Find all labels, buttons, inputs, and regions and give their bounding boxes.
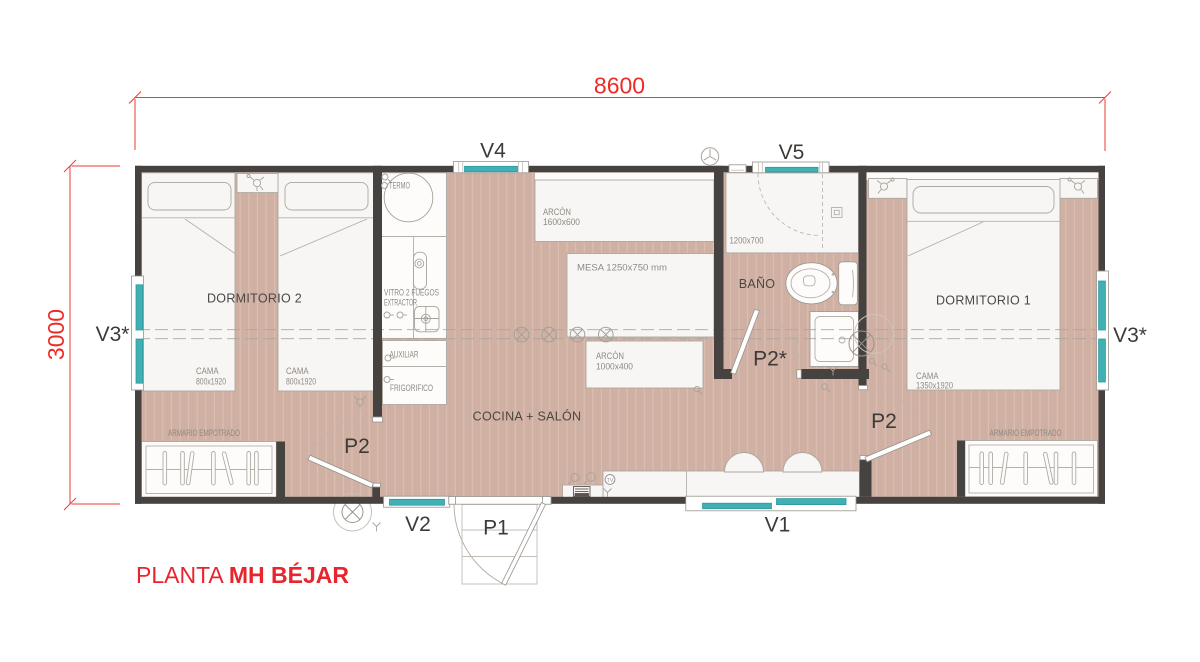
svg-text:VITRO 2 FUEGOS: VITRO 2 FUEGOS bbox=[384, 288, 439, 298]
svg-text:P2*: P2* bbox=[753, 348, 787, 371]
svg-text:8600: 8600 bbox=[594, 73, 645, 99]
svg-text:P2: P2 bbox=[871, 410, 897, 433]
svg-text:V4: V4 bbox=[480, 140, 506, 163]
svg-text:TV: TV bbox=[607, 478, 614, 484]
svg-text:BAÑO: BAÑO bbox=[739, 277, 776, 291]
svg-text:1200x700: 1200x700 bbox=[730, 236, 764, 246]
svg-text:V2: V2 bbox=[405, 513, 431, 536]
svg-text:V3*: V3* bbox=[1113, 324, 1147, 347]
svg-text:ARCÓN: ARCÓN bbox=[596, 351, 624, 361]
svg-text:EXTRACTOR: EXTRACTOR bbox=[384, 298, 417, 308]
svg-text:1600x600: 1600x600 bbox=[543, 217, 580, 227]
svg-text:CAMA: CAMA bbox=[196, 366, 219, 376]
svg-text:P2: P2 bbox=[344, 435, 370, 458]
svg-text:MESA 1250x750 mm: MESA 1250x750 mm bbox=[577, 263, 667, 273]
svg-text:COCINA + SALÓN: COCINA + SALÓN bbox=[473, 409, 582, 424]
svg-text:ARCÓN: ARCÓN bbox=[543, 207, 571, 217]
svg-text:DORMITORIO 2: DORMITORIO 2 bbox=[207, 292, 302, 306]
svg-text:800x1920: 800x1920 bbox=[196, 377, 226, 387]
svg-text:DORMITORIO 1: DORMITORIO 1 bbox=[936, 294, 1031, 308]
svg-text:PLANTA MH BÉJAR: PLANTA MH BÉJAR bbox=[136, 561, 349, 588]
svg-text:AUXILIAR: AUXILIAR bbox=[390, 350, 419, 360]
svg-text:ARMARIO EMPOTRADO: ARMARIO EMPOTRADO bbox=[168, 428, 240, 438]
svg-text:ARMARIO EMPOTRADO: ARMARIO EMPOTRADO bbox=[990, 428, 1062, 438]
svg-text:P1: P1 bbox=[483, 517, 509, 540]
svg-text:800x1920: 800x1920 bbox=[286, 377, 316, 387]
svg-text:V1: V1 bbox=[765, 514, 791, 537]
svg-text:1000x400: 1000x400 bbox=[596, 362, 633, 372]
svg-text:CAMA: CAMA bbox=[916, 371, 939, 381]
svg-text:1350x1920: 1350x1920 bbox=[916, 381, 953, 391]
svg-text:CAMA: CAMA bbox=[286, 366, 309, 376]
svg-text:V5: V5 bbox=[779, 141, 805, 164]
svg-text:TERMO: TERMO bbox=[389, 181, 410, 191]
svg-text:FRIGORIFICO: FRIGORIFICO bbox=[390, 383, 433, 393]
svg-text:3000: 3000 bbox=[43, 309, 69, 360]
svg-text:V3*: V3* bbox=[96, 323, 130, 346]
